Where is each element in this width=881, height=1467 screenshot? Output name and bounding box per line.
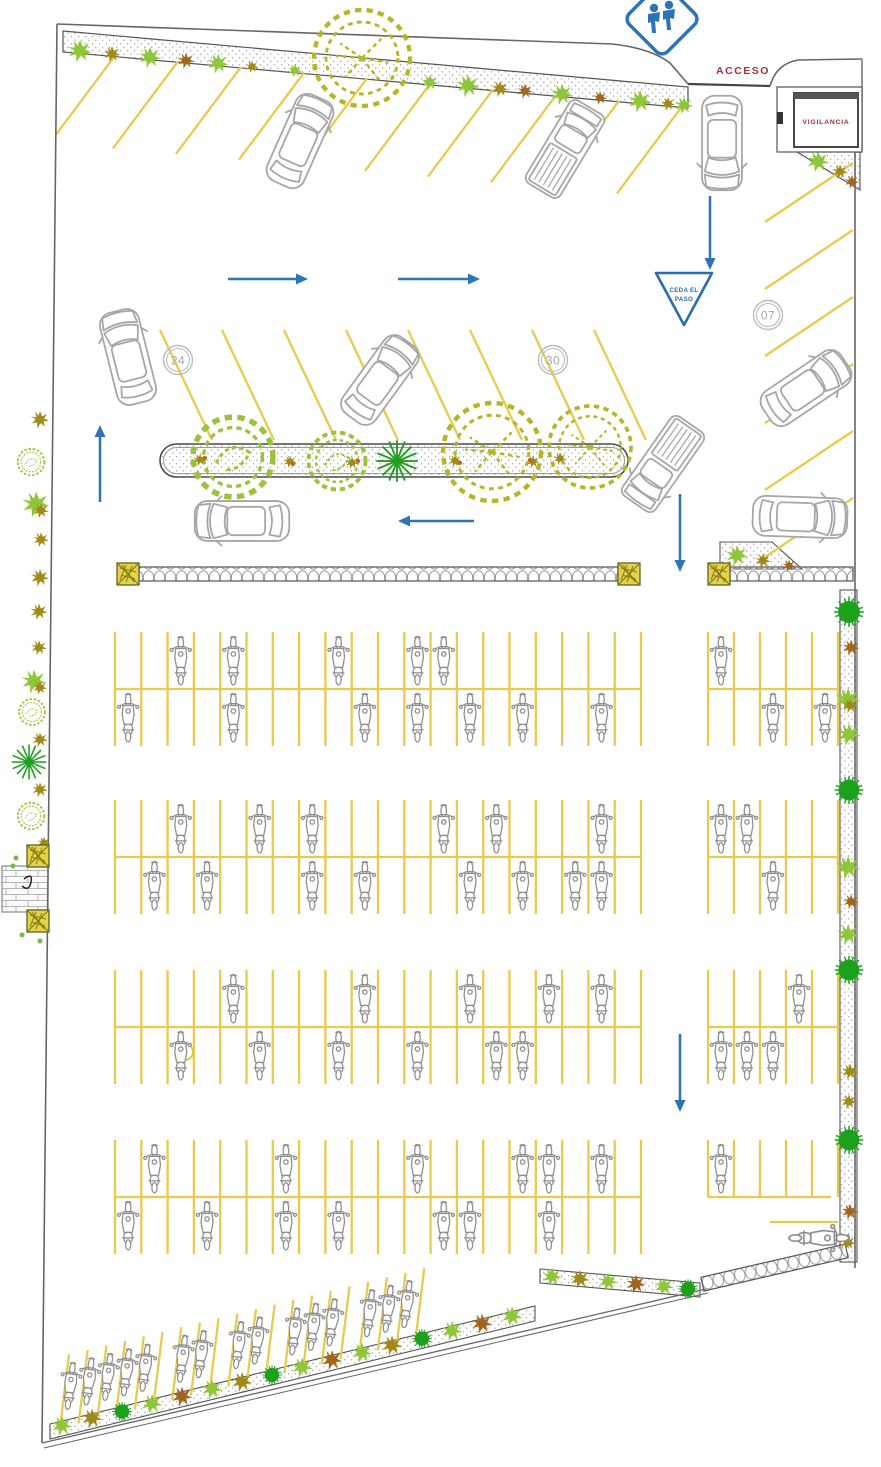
- planter-box-icon: [618, 563, 640, 585]
- planter-box-icon: [27, 910, 49, 932]
- shrub-icon: [377, 441, 417, 481]
- surveillance-booth: VIGILANCIA: [777, 87, 862, 152]
- bay-number-24-label: 24: [171, 354, 185, 368]
- yield-label-line1: CEDA EL: [669, 287, 698, 294]
- booth-wall-band: [794, 93, 858, 99]
- flower-dot: [356, 459, 360, 463]
- shrub-icon: [12, 745, 46, 779]
- flower-dot: [203, 456, 207, 460]
- ground-cover-dot: [11, 864, 16, 869]
- access-label: ACCESO: [716, 65, 770, 77]
- ground-cover-dot: [38, 939, 43, 944]
- flower-dot: [528, 458, 532, 462]
- planter-box-icon: [708, 563, 730, 585]
- yield-label-line2: PASO: [675, 296, 693, 303]
- flower-dot: [291, 462, 295, 466]
- bay-number-30-label: 30: [546, 354, 560, 368]
- brick-walkway-west: [2, 866, 48, 912]
- car-icon: [195, 496, 290, 546]
- car-icon: [752, 490, 848, 544]
- site-plan-canvas: VIGILANCIA ACCESO CEDA EL PASO 24 30 07: [0, 0, 881, 1467]
- pedestrian-walkway-west: [139, 567, 618, 581]
- bay-number-07-label: 07: [761, 309, 775, 323]
- surveillance-label: VIGILANCIA: [802, 119, 849, 126]
- site-plan-page: VIGILANCIA ACCESO CEDA EL PASO 24 30 07: [0, 0, 881, 1467]
- booth-door: [777, 112, 783, 124]
- planter-box-icon: [27, 845, 49, 867]
- ground-cover-dot: [20, 933, 25, 938]
- flower-dot: [458, 461, 462, 465]
- car-icon: [697, 96, 747, 191]
- ground-cover-dot: [14, 856, 19, 861]
- planter-box-icon: [117, 563, 139, 585]
